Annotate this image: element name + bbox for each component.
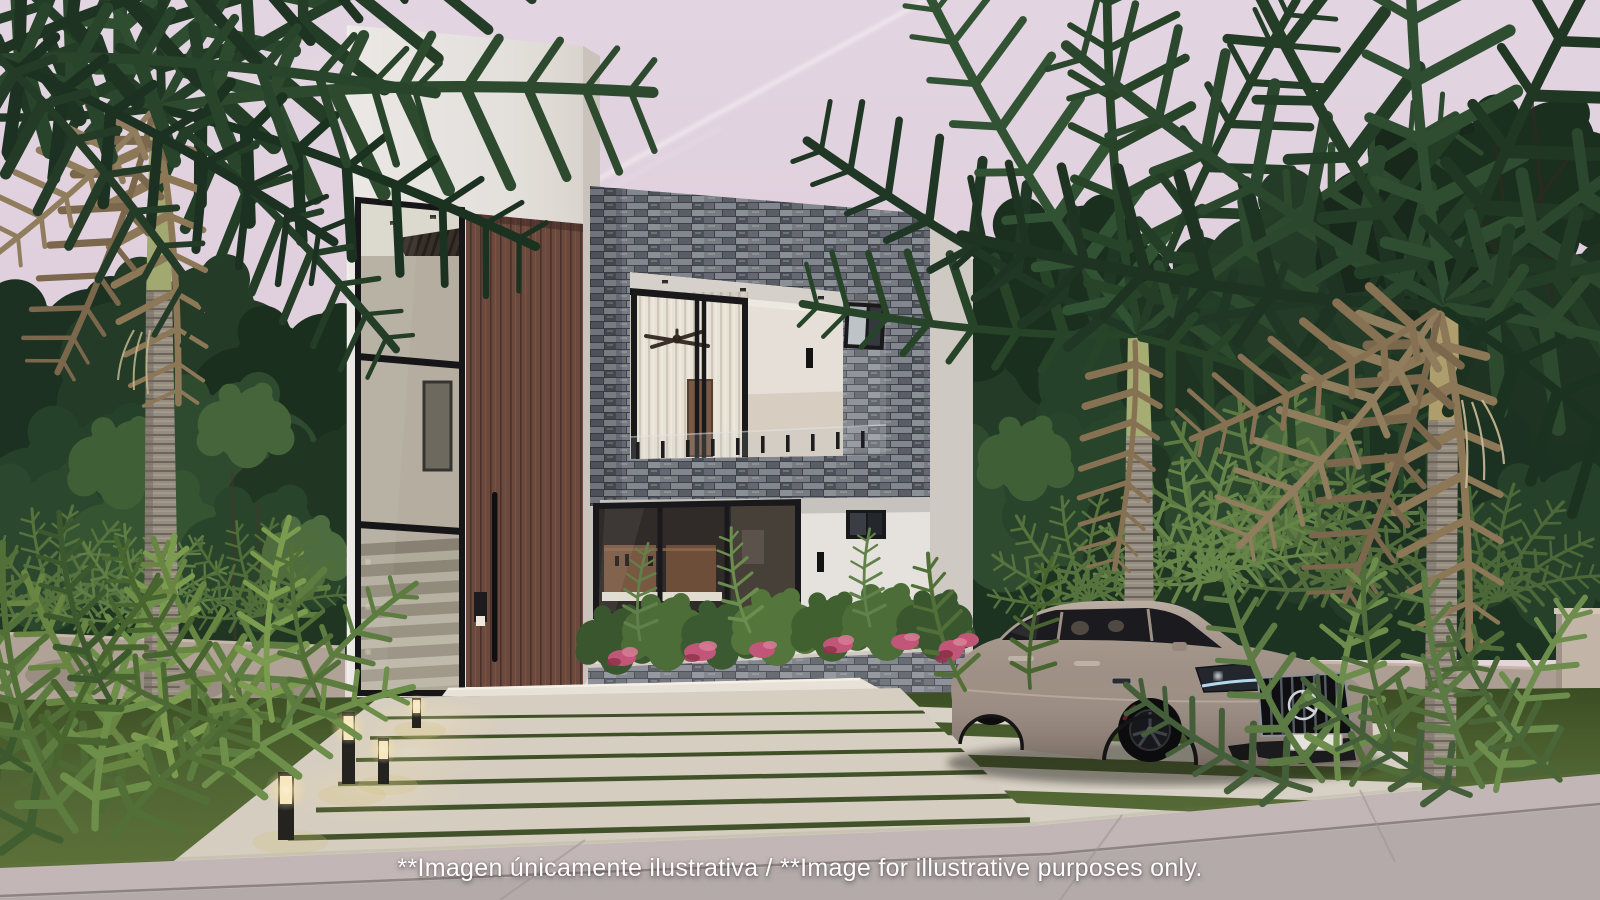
architectural-render: **Imagen únicamente ilustrativa / **Imag… <box>0 0 1600 900</box>
dusk-tint <box>0 0 1600 900</box>
render-canvas <box>0 0 1600 900</box>
disclaimer-text: **Imagen únicamente ilustrativa / **Imag… <box>0 854 1600 883</box>
